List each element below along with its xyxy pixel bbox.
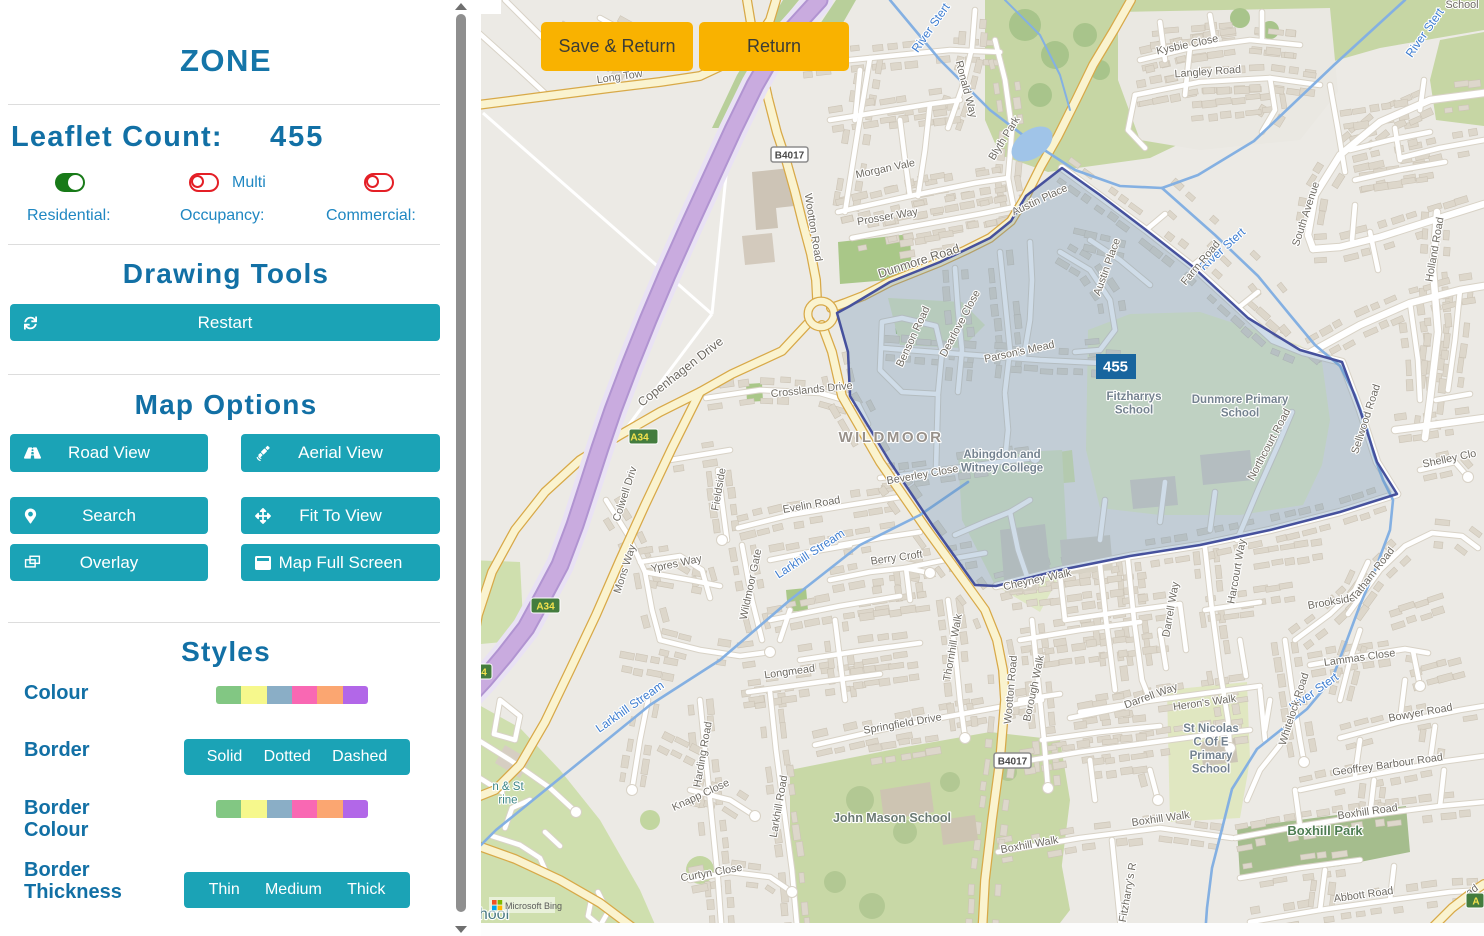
- svg-text:Boxhill Park: Boxhill Park: [1287, 823, 1363, 838]
- svg-text:A34: A34: [630, 433, 649, 444]
- svg-text:Abingdon andWitney College: Abingdon andWitney College: [961, 449, 1043, 475]
- svg-text:B4017: B4017: [998, 757, 1028, 768]
- svg-text:School: School: [1445, 0, 1478, 11]
- svg-text:A: A: [1472, 897, 1479, 908]
- svg-text:John Mason School: John Mason School: [833, 811, 951, 825]
- svg-text:WILDMOOR: WILDMOOR: [839, 429, 944, 446]
- svg-text:455: 455: [1103, 359, 1128, 376]
- svg-text:4: 4: [481, 668, 487, 679]
- svg-text:A34: A34: [536, 602, 555, 613]
- svg-text:Microsoft Bing: Microsoft Bing: [505, 901, 562, 911]
- svg-text:B4017: B4017: [775, 151, 805, 162]
